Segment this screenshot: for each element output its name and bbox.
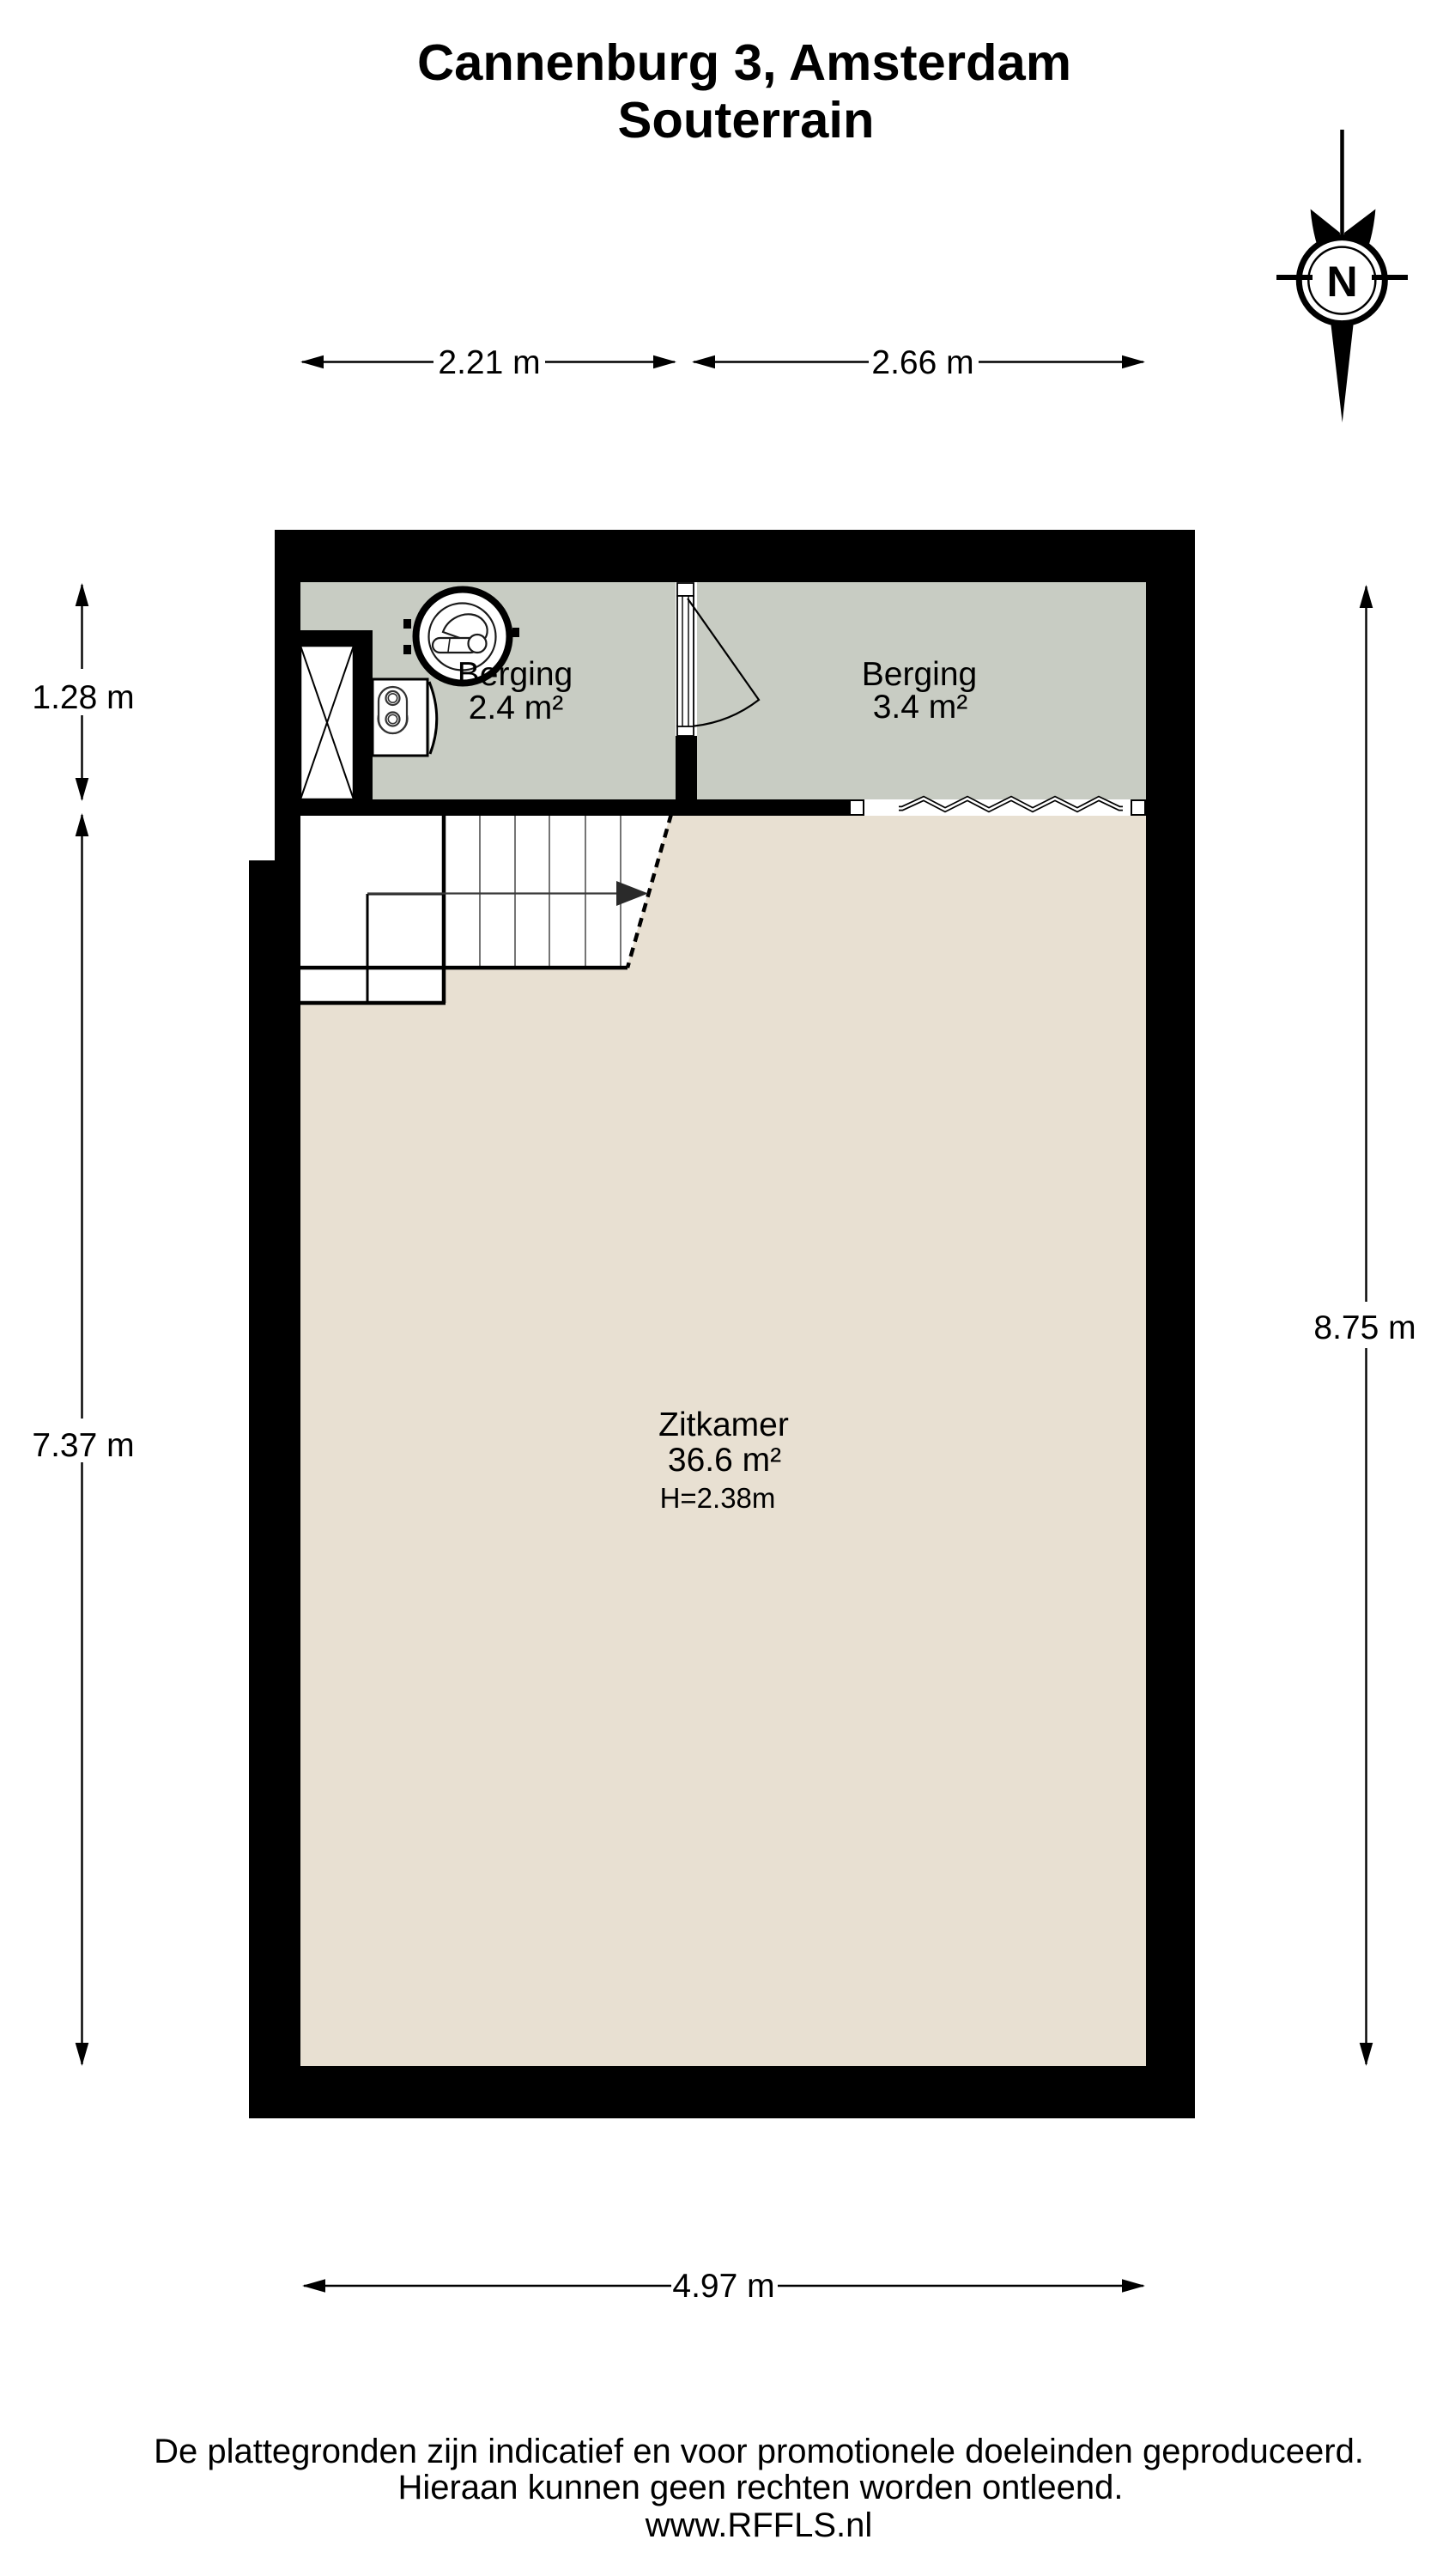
svg-text:3.4 m²: 3.4 m² (873, 689, 968, 726)
svg-text:Berging: Berging (862, 656, 977, 693)
svg-text:N: N (1326, 258, 1357, 306)
svg-text:8.75 m: 8.75 m (1313, 1309, 1416, 1346)
svg-text:2.66 m: 2.66 m (871, 344, 973, 381)
svg-text:Zitkamer: Zitkamer (658, 1406, 789, 1443)
svg-text:2.4 m²: 2.4 m² (469, 690, 564, 726)
svg-text:www.RFFLS.nl: www.RFFLS.nl (645, 2506, 873, 2544)
svg-text:H=2.38m: H=2.38m (660, 1482, 776, 1514)
svg-text:4.97 m: 4.97 m (672, 2268, 774, 2305)
svg-text:36.6 m²: 36.6 m² (668, 1442, 781, 1479)
svg-text:2.21 m: 2.21 m (438, 344, 540, 381)
svg-text:Hieraan kunnen geen rechten wo: Hieraan kunnen geen rechten worden ontle… (397, 2469, 1123, 2506)
svg-text:1.28 m: 1.28 m (32, 679, 134, 716)
svg-text:De plattegronden zijn indicati: De plattegronden zijn indicatief en voor… (154, 2433, 1364, 2470)
svg-text:Berging: Berging (458, 656, 573, 693)
svg-text:7.37 m: 7.37 m (32, 1427, 134, 1464)
svg-text:Cannenburg 3, Amsterdam: Cannenburg 3, Amsterdam (417, 33, 1071, 91)
svg-text:Souterrain: Souterrain (617, 91, 874, 149)
